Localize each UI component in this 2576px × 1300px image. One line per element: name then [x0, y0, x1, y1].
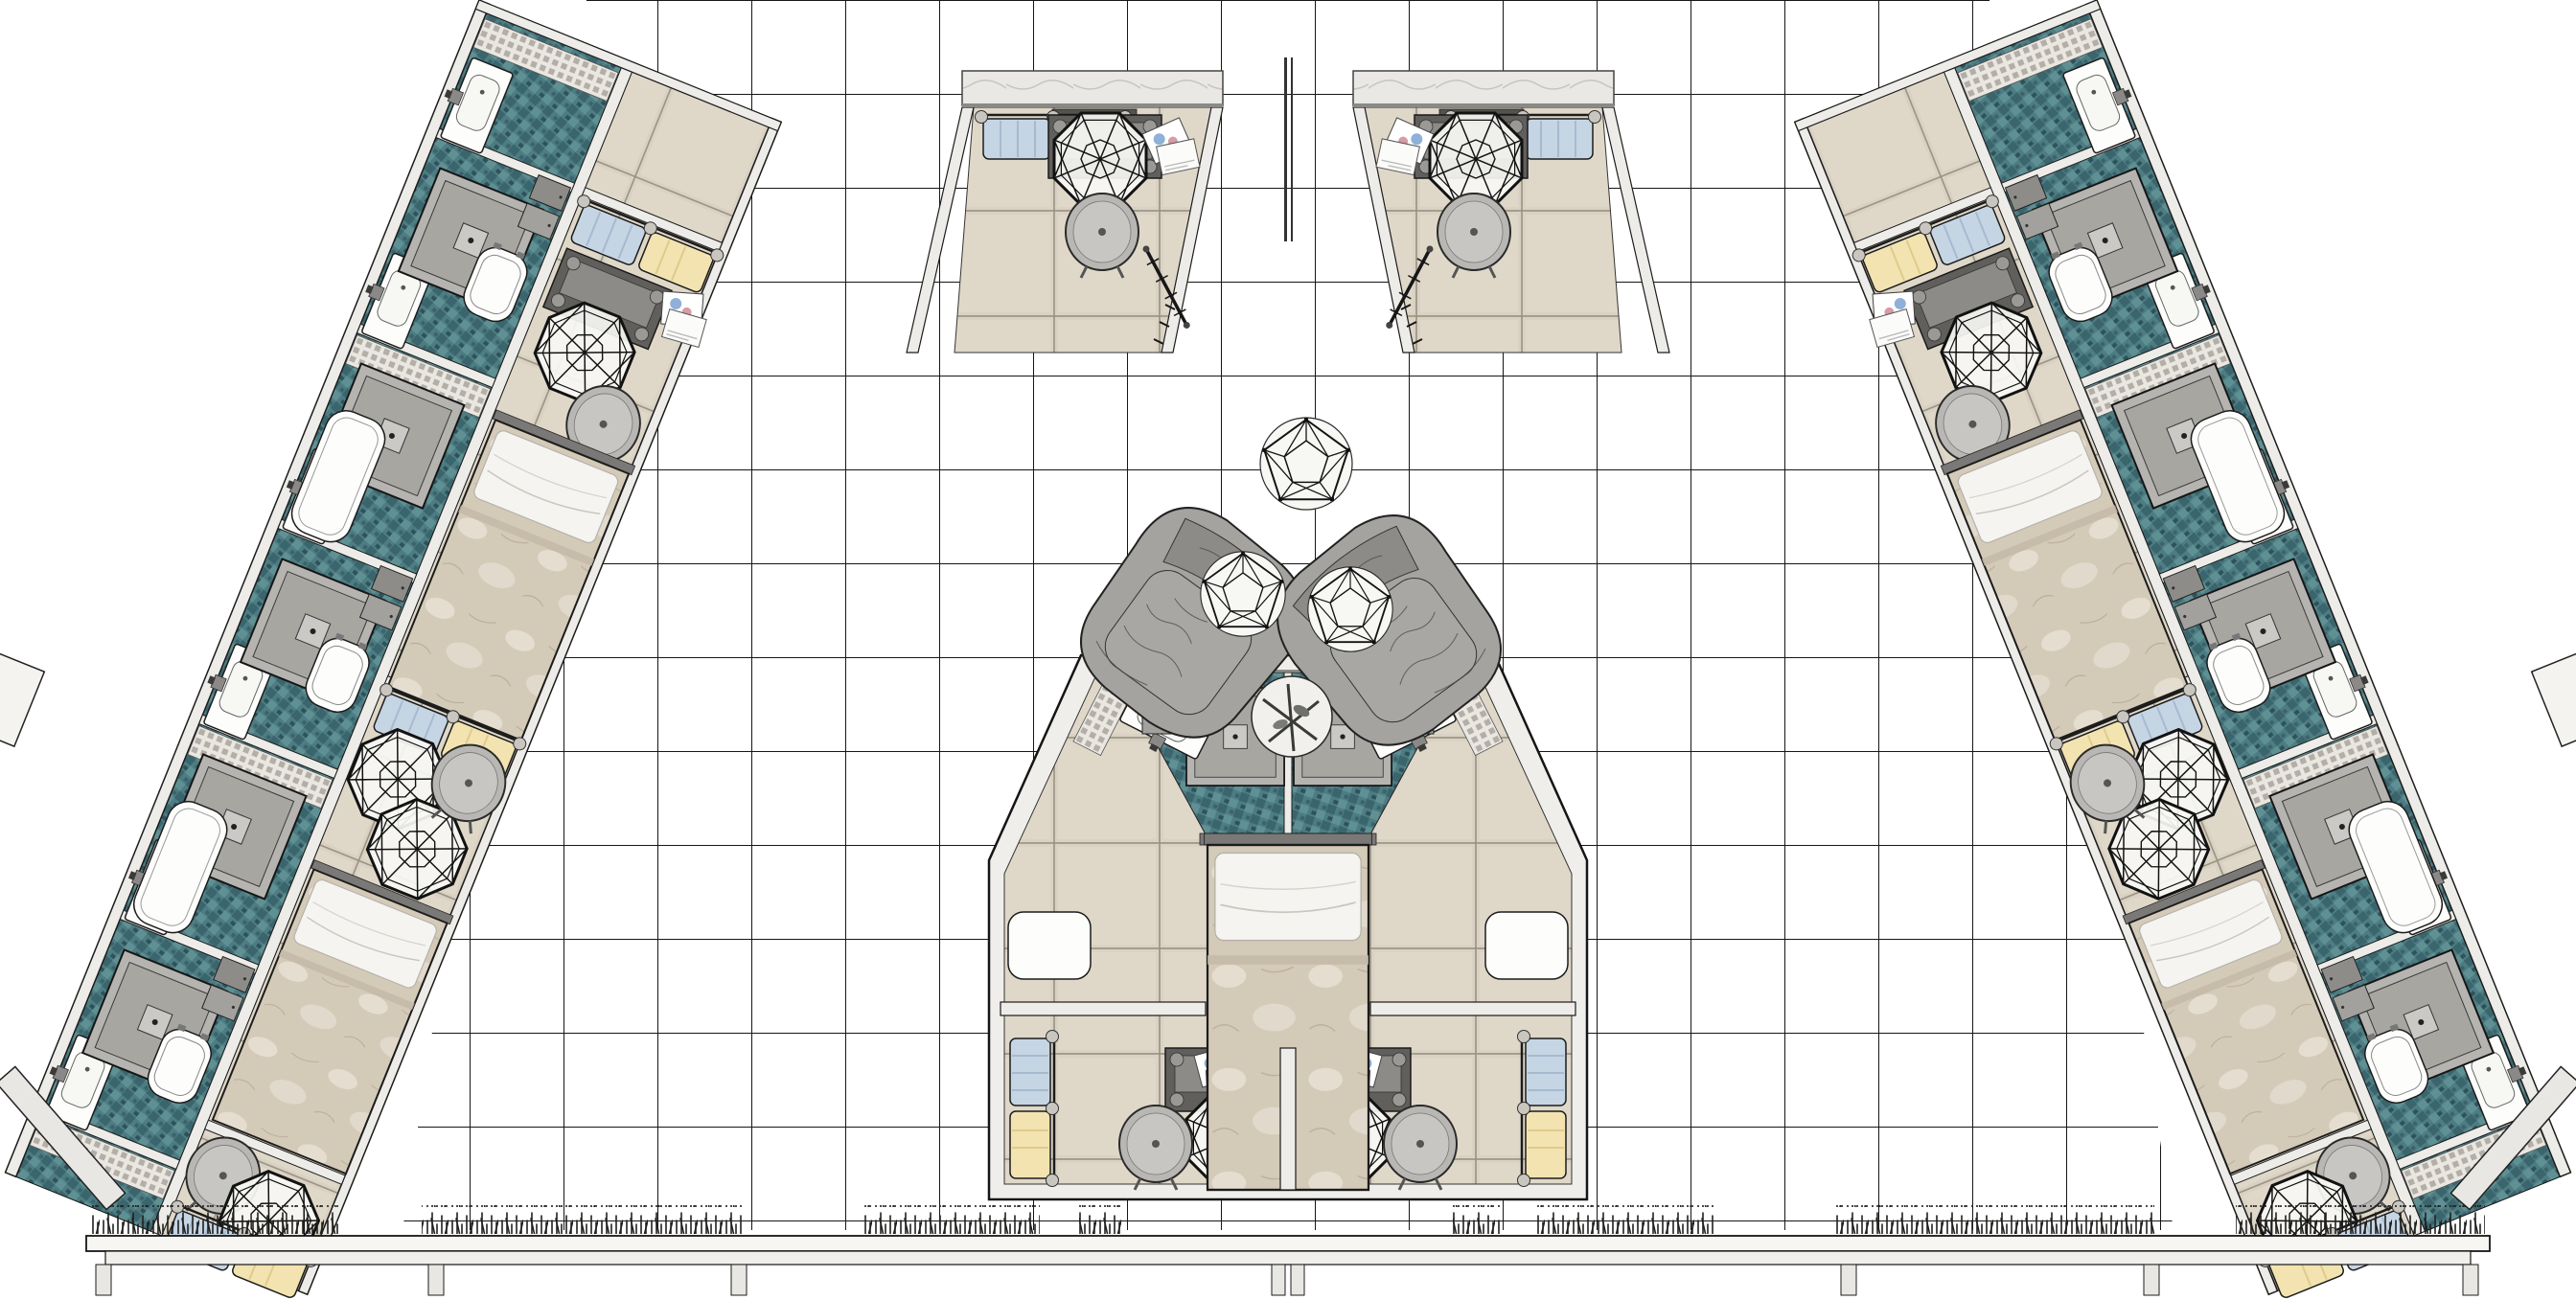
side-table: [1252, 676, 1332, 757]
geodesic-sphere-pendant: [1308, 567, 1392, 651]
planting-strip: [2236, 1205, 2485, 1234]
planting-strip: [1537, 1205, 1714, 1234]
planting-strip: [1453, 1205, 1501, 1234]
post: [1272, 1265, 1285, 1295]
post: [428, 1265, 444, 1295]
planting-strip: [862, 1205, 1040, 1234]
post: [2463, 1265, 2478, 1295]
baseline-bar-lower: [105, 1251, 2471, 1265]
planting-strip: [1833, 1205, 2154, 1234]
post: [731, 1265, 747, 1295]
post: [1291, 1265, 1304, 1295]
baseline-bar-upper: [86, 1236, 2490, 1251]
post: [96, 1265, 111, 1295]
post: [2144, 1265, 2159, 1295]
planting-strip: [422, 1205, 743, 1234]
planting-strip: [91, 1205, 340, 1234]
floor-plan-canvas: [0, 0, 2576, 1300]
floor-plan-page: [0, 0, 2576, 1300]
planting-strip: [1079, 1205, 1123, 1234]
suite-center-column: [1280, 1048, 1296, 1190]
geodesic-sphere-pendant: [1201, 552, 1285, 636]
post: [1841, 1265, 1856, 1295]
mullion-line2: [1291, 57, 1293, 241]
mullion-line: [1284, 57, 1287, 241]
geodesic-sphere-pendant: [1260, 418, 1352, 510]
